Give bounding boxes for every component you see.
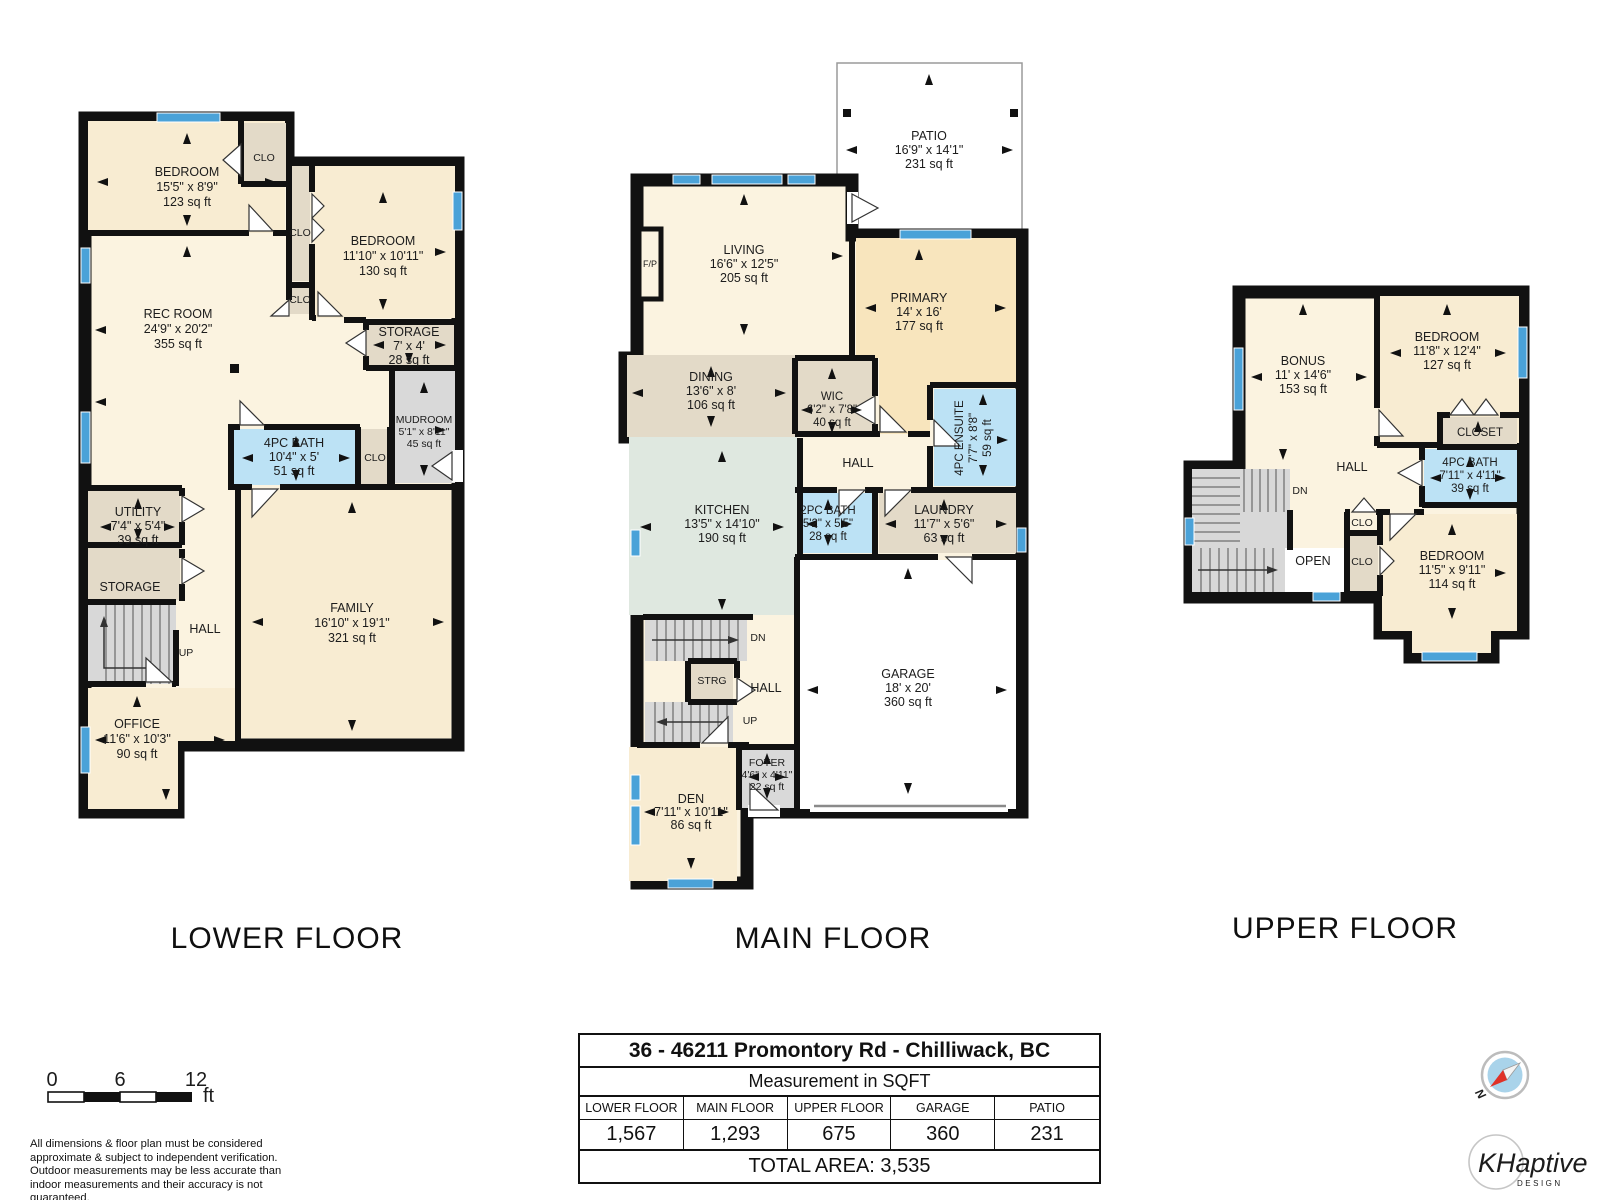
label-lower-clo-hall-upper: CLO xyxy=(289,227,311,239)
label-lower-office-area: 90 sq ft xyxy=(117,747,159,761)
label-lower-mudroom-area: 45 sq ft xyxy=(407,438,442,450)
label-main-bath2-name: 2PC BATH xyxy=(800,505,855,517)
label-upper-bath-dims: 7'11" x 4'11" xyxy=(1439,470,1500,482)
floorplan-page: BEDROOM 15'5" x 8'9" 123 sq ft CLO BEDRO… xyxy=(0,0,1600,1200)
label-lower-mudroom-name: MUDROOM xyxy=(396,414,453,426)
label-upper-open: OPEN xyxy=(1295,554,1330,568)
label-main-foyer-name: FOYER xyxy=(749,757,786,769)
label-main-primary-area: 177 sq ft xyxy=(895,319,943,333)
label-upper-closet: CLOSET xyxy=(1457,427,1503,439)
label-main-dining-name: DINING xyxy=(689,370,733,384)
label-main-garage-name: GARAGE xyxy=(881,667,935,681)
label-main-den-dims: 7'11" x 10'11" xyxy=(654,805,728,819)
label-lower-bath-area: 51 sq ft xyxy=(274,464,316,478)
label-main-laundry-name: LAUNDRY xyxy=(914,503,974,517)
label-lower-up: UP xyxy=(179,647,194,659)
label-lower-storage-right-name: STORAGE xyxy=(379,325,440,339)
address-title: 36 - 46211 Promontory Rd - Chilliwack, B… xyxy=(580,1035,1099,1068)
col-header-garage: GARAGE xyxy=(891,1097,995,1119)
label-main-bath2-area: 28 sq ft xyxy=(809,531,848,543)
scale-seg-4 xyxy=(156,1092,192,1102)
main-floor-title: MAIN FLOOR xyxy=(735,922,932,955)
label-main-patio-area: 231 sq ft xyxy=(905,157,953,171)
label-lower-utility-name: UTILITY xyxy=(115,505,162,519)
scale-seg-1 xyxy=(48,1092,84,1102)
label-lower-family-dims: 16'10" x 19'1" xyxy=(314,616,390,630)
label-upper-clo2: CLO xyxy=(1351,556,1373,568)
label-upper-bath-area: 39 sq ft xyxy=(1451,483,1490,495)
label-main-primary-dims: 14' x 16' xyxy=(896,305,942,319)
label-main-dining-dims: 13'6" x 8' xyxy=(686,384,736,398)
label-lower-bath-dims: 10'4" x 5' xyxy=(269,450,319,464)
scale-seg-3 xyxy=(120,1092,156,1102)
label-lower-hall: HALL xyxy=(189,622,220,636)
label-lower-bedroom1-dims: 15'5" x 8'9" xyxy=(156,180,218,194)
value-upper: 675 xyxy=(788,1120,892,1149)
scale-unit: ft xyxy=(203,1085,215,1107)
label-main-bath2-dims: 5'2" x 5'5" xyxy=(803,518,853,530)
value-lower: 1,567 xyxy=(580,1120,684,1149)
label-lower-utility-area: 39 sq ft xyxy=(118,533,160,547)
label-lower-storage-left: STORAGE xyxy=(100,580,161,594)
label-main-kitchen-dims: 13'5" x 14'10" xyxy=(684,517,760,531)
scale-seg-2 xyxy=(84,1092,120,1102)
label-upper-bedroom2-area: 114 sq ft xyxy=(1428,577,1476,591)
label-main-patio-dims: 16'9" x 14'1" xyxy=(895,143,964,157)
label-lower-clo-bedroom1: CLO xyxy=(253,152,275,164)
label-upper-bedroom1-name: BEDROOM xyxy=(1415,330,1480,344)
label-lower-rec-dims: 24'9" x 20'2" xyxy=(144,322,213,336)
label-lower-office-name: OFFICE xyxy=(114,717,160,731)
designer-logo: KHaptive DESIGN xyxy=(1469,1135,1588,1189)
label-lower-bedroom2-area: 130 sq ft xyxy=(359,264,407,278)
label-lower-bedroom1-name: BEDROOM xyxy=(155,165,220,179)
label-upper-clo1: CLO xyxy=(1351,517,1373,529)
label-lower-storage-right-dims: 7' x 4' xyxy=(393,339,425,353)
summary-table-header-row: LOWER FLOOR MAIN FLOOR UPPER FLOOR GARAG… xyxy=(580,1097,1099,1120)
label-main-hall-lower: HALL xyxy=(750,681,781,695)
label-main-primary-name: PRIMARY xyxy=(891,291,948,305)
floorplan-canvas: BEDROOM 15'5" x 8'9" 123 sq ft CLO BEDRO… xyxy=(0,0,1600,1200)
label-lower-storage-right-area: 28 sq ft xyxy=(389,353,431,367)
label-upper-bath-name: 4PC BATH xyxy=(1442,457,1497,469)
label-main-kitchen-area: 190 sq ft xyxy=(698,531,746,545)
label-main-up: UP xyxy=(743,715,758,727)
scale-label-6: 6 xyxy=(114,1069,125,1091)
logo-subtext: DESIGN xyxy=(1517,1179,1563,1188)
label-main-ensuite-area: 59 sq ft xyxy=(982,418,994,457)
label-upper-hall: HALL xyxy=(1336,460,1367,474)
label-upper-bedroom2-name: BEDROOM xyxy=(1420,549,1485,563)
col-header-lower: LOWER FLOOR xyxy=(580,1097,684,1119)
label-lower-bath-name: 4PC BATH xyxy=(264,436,324,450)
patio-post-left xyxy=(843,109,851,117)
measurement-subtitle: Measurement in SQFT xyxy=(580,1068,1099,1097)
label-lower-bedroom1-area: 123 sq ft xyxy=(163,195,211,209)
upper-floor-title: UPPER FLOOR xyxy=(1232,912,1458,945)
room-lower-clo-hall-upper xyxy=(290,166,310,281)
upper-floor-plan: BONUS 11' x 14'6" 153 sq ft BEDROOM 11'8… xyxy=(1185,292,1527,661)
col-header-main: MAIN FLOOR xyxy=(684,1097,788,1119)
label-main-living-area: 205 sq ft xyxy=(720,271,768,285)
label-lower-utility-dims: 7'4" x 5'4" xyxy=(111,519,166,533)
label-upper-bonus-area: 153 sq ft xyxy=(1279,382,1327,396)
value-garage: 360 xyxy=(891,1120,995,1149)
label-upper-bedroom1-dims: 11'8" x 12'4" xyxy=(1413,344,1481,358)
compass-icon: N xyxy=(1472,1052,1528,1102)
compass-north-label: N xyxy=(1472,1086,1489,1101)
label-upper-bonus-name: BONUS xyxy=(1281,354,1325,368)
label-main-wic-name: WIC xyxy=(821,391,843,403)
total-area: TOTAL AREA: 3,535 xyxy=(580,1151,1099,1182)
label-main-kitchen-name: KITCHEN xyxy=(695,503,750,517)
lower-mudroom-door-gap xyxy=(452,450,463,482)
label-main-ensuite-dims: 7'7" x 8'8" xyxy=(968,413,980,463)
label-main-laundry-area: 63 sq ft xyxy=(924,531,966,545)
label-main-fireplace: F/P xyxy=(643,259,657,269)
col-header-patio: PATIO xyxy=(995,1097,1099,1119)
col-header-upper: UPPER FLOOR xyxy=(788,1097,892,1119)
value-main: 1,293 xyxy=(684,1120,788,1149)
lower-floor-plan: BEDROOM 15'5" x 8'9" 123 sq ft CLO BEDRO… xyxy=(81,113,463,812)
label-main-wic-dims: 6'2" x 7'8" xyxy=(807,404,857,416)
label-main-ensuite-name: 4PC ENSUITE xyxy=(954,400,966,476)
label-main-laundry-dims: 11'7" x 5'6" xyxy=(914,517,975,531)
label-main-living-dims: 16'6" x 12'5" xyxy=(710,257,779,271)
lower-floor-title: LOWER FLOOR xyxy=(171,922,404,955)
label-lower-family-area: 321 sq ft xyxy=(328,631,376,645)
label-lower-bedroom2-name: BEDROOM xyxy=(351,234,416,248)
label-upper-bedroom2-dims: 11'5" x 9'11" xyxy=(1419,563,1486,577)
lower-post xyxy=(230,364,239,373)
label-lower-bedroom2-dims: 11'10" x 10'11" xyxy=(343,249,424,263)
summary-table-values-row: 1,567 1,293 675 360 231 xyxy=(580,1120,1099,1151)
scale-label-0: 0 xyxy=(46,1069,57,1091)
logo-text: KHaptive xyxy=(1478,1148,1588,1178)
patio-post-right xyxy=(1010,109,1018,117)
label-upper-dn: DN xyxy=(1292,485,1307,497)
label-main-dining-area: 106 sq ft xyxy=(687,398,735,412)
label-main-hall-upper: HALL xyxy=(842,456,873,470)
label-lower-rec-area: 355 sq ft xyxy=(154,337,202,351)
room-upper-bedroom2-bay xyxy=(1412,631,1491,653)
main-floor-plan: PATIO 16'9" x 14'1" 231 sq ft LIVING 16'… xyxy=(625,63,1026,888)
disclaimer-text: All dimensions & floor plan must be cons… xyxy=(30,1138,306,1200)
label-lower-office-dims: 11'6" x 10'3" xyxy=(103,732,171,746)
label-main-foyer-area: 22 sq ft xyxy=(750,781,785,793)
label-main-patio-name: PATIO xyxy=(911,129,947,143)
scale-bar: 0 6 12 ft xyxy=(46,1069,214,1107)
label-lower-rec-name: REC ROOM xyxy=(144,307,213,321)
label-upper-bonus-dims: 11' x 14'6" xyxy=(1275,368,1331,382)
label-main-garage-area: 360 sq ft xyxy=(884,695,932,709)
label-lower-clo-bath: CLO xyxy=(364,452,386,464)
label-lower-family-name: FAMILY xyxy=(330,601,374,615)
label-main-strg: STRG xyxy=(697,675,726,687)
value-patio: 231 xyxy=(995,1120,1099,1149)
room-lower-stairs xyxy=(88,604,176,684)
label-main-den-name: DEN xyxy=(678,792,704,806)
label-main-dn: DN xyxy=(750,632,765,644)
label-upper-bedroom1-area: 127 sq ft xyxy=(1423,358,1471,372)
label-main-living-name: LIVING xyxy=(724,243,765,257)
label-main-foyer-dims: 4'6" x 4'11" xyxy=(742,769,793,781)
label-main-wic-area: 40 sq ft xyxy=(813,417,852,429)
label-main-garage-dims: 18' x 20' xyxy=(885,681,931,695)
label-lower-mudroom-dims: 5'1" x 8'11" xyxy=(399,426,450,438)
label-main-den-area: 86 sq ft xyxy=(671,818,713,832)
label-lower-clo-hall-lower: CLO xyxy=(289,294,311,306)
summary-table: 36 - 46211 Promontory Rd - Chilliwack, B… xyxy=(578,1033,1101,1184)
